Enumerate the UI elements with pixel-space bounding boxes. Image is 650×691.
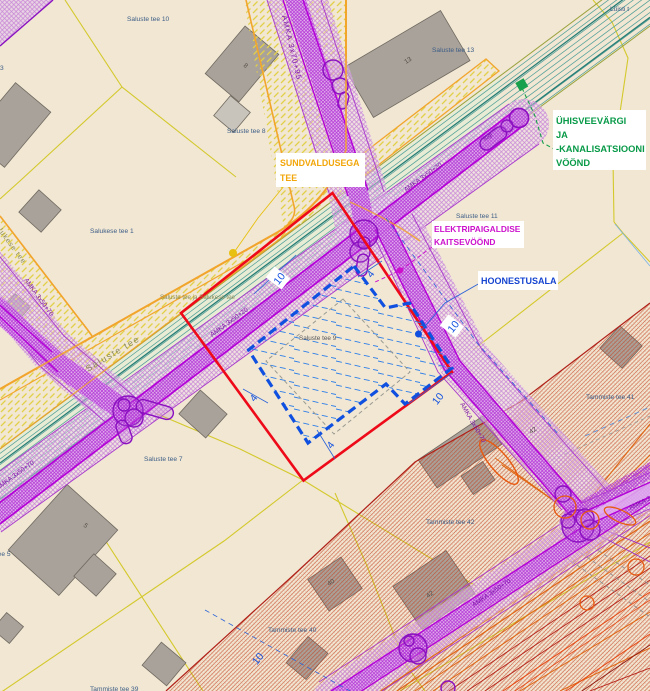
svg-text:SUNDVALDUSEGA: SUNDVALDUSEGA (280, 158, 360, 168)
svg-text:Lüisti t: Lüisti t (610, 6, 629, 13)
svg-text:3: 3 (0, 65, 4, 72)
svg-text:Saluste tee ja Salukese tee: Saluste tee ja Salukese tee (160, 294, 236, 301)
svg-text:Saluste tee 10: Saluste tee 10 (127, 16, 169, 23)
svg-text:Saluste tee 5: Saluste tee 5 (0, 551, 11, 558)
svg-text:Saluste tee 11: Saluste tee 11 (456, 213, 498, 220)
svg-text:KAITSEVÖÖND: KAITSEVÖÖND (434, 237, 495, 247)
svg-text:Tammiste tee 41: Tammiste tee 41 (586, 394, 635, 401)
svg-text:Tammiste tee 42: Tammiste tee 42 (426, 519, 475, 526)
svg-text:ÜHISVEEVÄRGI: ÜHISVEEVÄRGI (556, 116, 626, 126)
svg-text:-KANALISATSIOONI: -KANALISATSIOONI (556, 144, 645, 154)
svg-text:TEE: TEE (280, 173, 297, 183)
svg-text:Saluste tee 8: Saluste tee 8 (227, 128, 266, 135)
svg-text:VÖÖND: VÖÖND (556, 158, 590, 168)
svg-text:Tammiste tee 40: Tammiste tee 40 (268, 627, 317, 634)
svg-text:Saluste tee 9: Saluste tee 9 (299, 335, 337, 342)
svg-text:ELEKTRIPAIGALDISE: ELEKTRIPAIGALDISE (434, 224, 521, 234)
svg-text:HOONESTUSALA: HOONESTUSALA (481, 276, 557, 286)
svg-text:Saluste tee 13: Saluste tee 13 (432, 47, 474, 54)
svg-text:Saluste tee 7: Saluste tee 7 (144, 456, 183, 463)
svg-text:JA: JA (556, 130, 568, 140)
svg-text:Salukese tee 1: Salukese tee 1 (90, 228, 134, 235)
svg-text:Tammiste tee 39: Tammiste tee 39 (90, 686, 139, 691)
